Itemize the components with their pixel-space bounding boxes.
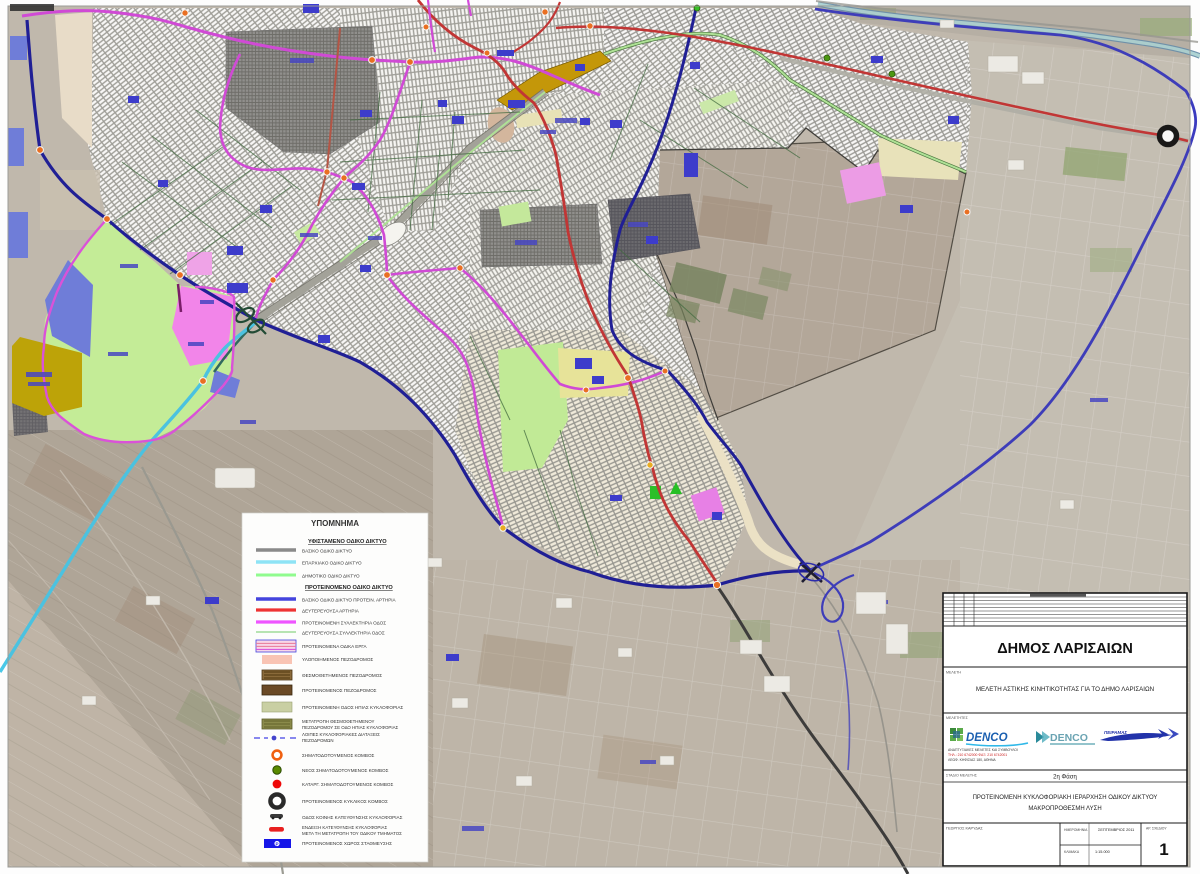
svg-text:ΕΠΑΡΧΙΑΚΟ ΟΔΙΚΟ ΔΙΚΤΥΟ: ΕΠΑΡΧΙΑΚΟ ΟΔΙΚΟ ΔΙΚΤΥΟ [302,561,362,566]
svg-text:ΓΕΩΡΓΙΟΣ ΚΑΡΥΔΑΣ: ΓΕΩΡΓΙΟΣ ΚΑΡΥΔΑΣ [946,827,983,831]
svg-text:ΠΡΟΤΕΙΝΟΜΕΝΟ ΟΔΙΚΟ ΔΙΚΤΥΟ: ΠΡΟΤΕΙΝΟΜΕΝΟ ΟΔΙΚΟ ΔΙΚΤΥΟ [305,585,393,591]
svg-text:ΔΕΥΤΕΡΕΥΟΥΣΑ ΣΥΛΛΕΚΤΗΡΙΑ ΟΔΟΣ: ΔΕΥΤΕΡΕΥΟΥΣΑ ΣΥΛΛΕΚΤΗΡΙΑ ΟΔΟΣ [302,631,385,636]
svg-text:ΘΕΣΜΟΘΕΤΗΜΕΝΟΣ ΠΕΖΟΔΡΟΜΟΣ: ΘΕΣΜΟΘΕΤΗΜΕΝΟΣ ΠΕΖΟΔΡΟΜΟΣ [302,673,382,678]
svg-text:ΣΕΠΤΕΜΒΡΙΟΣ 2011: ΣΕΠΤΕΜΒΡΙΟΣ 2011 [1098,828,1134,832]
svg-text:ΠΕΖΟΔΡΟΜΟΥ ΣΕ ΟΔΟ ΗΠΙΑΣ ΚΥΚΛΟΦ: ΠΕΖΟΔΡΟΜΟΥ ΣΕ ΟΔΟ ΗΠΙΑΣ ΚΥΚΛΟΦΟΡΙΑΣ [302,725,399,730]
svg-text:ΚΑΤΑΡΓ. ΣΗΜΑΤΟΔΟΤΟΥΜΕΝΟΣ ΚΟΜΒΟ: ΚΑΤΑΡΓ. ΣΗΜΑΤΟΔΟΤΟΥΜΕΝΟΣ ΚΟΜΒΟΣ [302,782,393,787]
svg-text:ΠΡΟΤΕΙΝΟΜΕΝΗ ΚΥΚΛΟΦΟΡΙΑΚΗ ΙΕΡΑ: ΠΡΟΤΕΙΝΟΜΕΝΗ ΚΥΚΛΟΦΟΡΙΑΚΗ ΙΕΡΑΡΧΗΣΗ ΟΔΙΚ… [973,795,1158,801]
svg-text:ΜΕΛΕΤΗ ΑΣΤΙΚΗΣ ΚΙΝΗΤΙΚΟΤΗΤΑΣ Γ: ΜΕΛΕΤΗ ΑΣΤΙΚΗΣ ΚΙΝΗΤΙΚΟΤΗΤΑΣ ΓΙΑ ΤΟ ΔΗΜΟ… [976,686,1154,693]
svg-text:ΗΜΕΡΟΜΗΝΙΑ: ΗΜΕΡΟΜΗΝΙΑ [1064,828,1088,832]
svg-text:ΥΛΟΠΟΙΗΜΕΝΟΣ ΠΕΖΟΔΡΟΜΟΣ: ΥΛΟΠΟΙΗΜΕΝΟΣ ΠΕΖΟΔΡΟΜΟΣ [302,657,373,662]
svg-text:ΕΝΔΕΙΞΗ ΚΑΤΕΥΘΥΝΣΗΣ ΚΥΚΛΟΦΟΡΙΑ: ΕΝΔΕΙΞΗ ΚΑΤΕΥΘΥΝΣΗΣ ΚΥΚΛΟΦΟΡΙΑΣ [302,825,387,830]
svg-text:ΜΑΚΡΟΠΡΟΘΕΣΜΗ ΛΥΣΗ: ΜΑΚΡΟΠΡΟΘΕΣΜΗ ΛΥΣΗ [1028,806,1101,812]
svg-text:2η Φάση: 2η Φάση [1053,774,1077,781]
svg-text:ΥΠΟΜΝΗΜΑ: ΥΠΟΜΝΗΜΑ [311,519,359,528]
svg-text:ΜΕΛΕΤΗΤΕΣ: ΜΕΛΕΤΗΤΕΣ [946,716,969,720]
svg-text:ΥΦΙΣΤΑΜΕΝΟ ΟΔΙΚΟ ΔΙΚΤΥΟ: ΥΦΙΣΤΑΜΕΝΟ ΟΔΙΚΟ ΔΙΚΤΥΟ [308,539,387,545]
svg-text:ΛΟΙΠΕΣ ΚΥΚΛΟΦΟΡΙΑΚΕΣ ΔΙΑΤΑΞΕΙΣ: ΛΟΙΠΕΣ ΚΥΚΛΟΦΟΡΙΑΚΕΣ ΔΙΑΤΑΞΕΙΣ [302,732,380,737]
svg-text:ΜΕΛΕΤΗ: ΜΕΛΕΤΗ [946,671,961,675]
svg-text:ΠΡΟΤΕΙΝΟΜΕΝΗ ΟΔΟΣ ΗΠΙΑΣ ΚΥΚΛΟΦ: ΠΡΟΤΕΙΝΟΜΕΝΗ ΟΔΟΣ ΗΠΙΑΣ ΚΥΚΛΟΦΟΡΙΑΣ [302,705,403,710]
svg-text:ΠΕΙΡΑΜΑΣ: ΠΕΙΡΑΜΑΣ [1104,730,1127,735]
svg-text:ΠΕΖΟΔΡΟΜΩΝ: ΠΕΖΟΔΡΟΜΩΝ [302,738,334,743]
svg-text:ΔΕΥΤΕΡΕΥΟΥΣΑ ΑΡΤΗΡΙΑ: ΔΕΥΤΕΡΕΥΟΥΣΑ ΑΡΤΗΡΙΑ [302,609,360,614]
svg-text:ΠΡΟΤΕΙΝΟΜΕΝΟΣ ΧΩΡΟΣ ΣΤΑΘΜΕΥΣΗΣ: ΠΡΟΤΕΙΝΟΜΕΝΟΣ ΧΩΡΟΣ ΣΤΑΘΜΕΥΣΗΣ [302,841,392,846]
svg-text:ΠΡΟΤΕΙΝΟΜΕΝΗ ΣΥΛΛΕΚΤΗΡΙΑ ΟΔΟΣ: ΠΡΟΤΕΙΝΟΜΕΝΗ ΣΥΛΛΕΚΤΗΡΙΑ ΟΔΟΣ [302,621,386,626]
svg-text:ΚΛΙΜΑΚΑ: ΚΛΙΜΑΚΑ [1064,850,1080,854]
svg-text:ΒΑΣΙΚΟ ΟΔΙΚΟ ΔΙΚΤΥΟ ΠΡΟΤΕΙΝ. Α: ΒΑΣΙΚΟ ΟΔΙΚΟ ΔΙΚΤΥΟ ΠΡΟΤΕΙΝ. ΑΡΤΗΡΙΑ [302,598,397,603]
svg-text:ΠΡΟΤΕΙΝΟΜΕΝΟΣ ΠΕΖΟΔΡΟΜΟΣ: ΠΡΟΤΕΙΝΟΜΕΝΟΣ ΠΕΖΟΔΡΟΜΟΣ [302,688,377,693]
svg-text:DENCO: DENCO [1050,732,1088,744]
svg-text:ΜΕΤΑ ΤΗ ΜΕΤΑΤΡΟΠΗ ΤΟΥ ΟΔΙΚΟΥ Τ: ΜΕΤΑ ΤΗ ΜΕΤΑΤΡΟΠΗ ΤΟΥ ΟΔΙΚΟΥ ΤΜΗΜΑΤΟΣ [302,831,402,836]
svg-text:ΣΤΑΔΙΟ ΜΕΛΕΤΗΣ: ΣΤΑΔΙΟ ΜΕΛΕΤΗΣ [946,774,978,778]
svg-text:DENCO: DENCO [966,732,1008,744]
svg-text:ΠΡΟΤΕΙΝΟΜΕΝΟΣ ΚΥΚΛΙΚΟΣ ΚΟΜΒΟΣ: ΠΡΟΤΕΙΝΟΜΕΝΟΣ ΚΥΚΛΙΚΟΣ ΚΟΜΒΟΣ [302,799,388,804]
svg-text:ΜΕΤΑΤΡΟΠΗ ΘΕΣΜΟΘΕΤΗΜΕΝΟΥ: ΜΕΤΑΤΡΟΠΗ ΘΕΣΜΟΘΕΤΗΜΕΝΟΥ [302,719,374,724]
svg-text:ΛΕΩΦ. ΚΗΦΙΣΙΑΣ 180, ΑΘΗΝΑ: ΛΕΩΦ. ΚΗΦΙΣΙΑΣ 180, ΑΘΗΝΑ [948,758,996,762]
svg-text:ΔΗΜΟΣ ΛΑΡΙΣΑΙΩΝ: ΔΗΜΟΣ ΛΑΡΙΣΑΙΩΝ [997,641,1133,657]
svg-text:ΝΕΟΣ ΣΗΜΑΤΟΔΟΤΟΥΜΕΝΟΣ ΚΟΜΒΟΣ: ΝΕΟΣ ΣΗΜΑΤΟΔΟΤΟΥΜΕΝΟΣ ΚΟΜΒΟΣ [302,768,389,773]
svg-text:1: 1 [1159,840,1168,859]
svg-text:1:15.000: 1:15.000 [1095,850,1110,854]
svg-text:ΤΗΛ.: 210 6742000 ΦΑΞ: 210 674: ΤΗΛ.: 210 6742000 ΦΑΞ: 210 6742001 [948,753,1007,757]
svg-text:ΑΡ. ΣΧΕΔΙΟΥ: ΑΡ. ΣΧΕΔΙΟΥ [1146,827,1167,831]
svg-text:ΠΡΟΤΕΙΝΟΜΕΝΑ ΟΔΙΚΑ ΕΡΓΑ: ΠΡΟΤΕΙΝΟΜΕΝΑ ΟΔΙΚΑ ΕΡΓΑ [302,644,367,649]
svg-text:P: P [275,842,278,847]
svg-text:ΟΔΟΣ ΚΟΙΝΗΣ ΚΑΤΕΥΘΥΝΣΗΣ ΚΥΚΛΟΦ: ΟΔΟΣ ΚΟΙΝΗΣ ΚΑΤΕΥΘΥΝΣΗΣ ΚΥΚΛΟΦΟΡΙΑΣ [302,815,403,820]
svg-text:ΑΝΑΠΤΥΞΙΑΚΕΣ ΜΕΛΕΤΕΣ ΚΑΙ ΣΥΜΒΟ: ΑΝΑΠΤΥΞΙΑΚΕΣ ΜΕΛΕΤΕΣ ΚΑΙ ΣΥΜΒΟΥΛΟΙ [948,748,1018,752]
svg-text:ΒΑΣΙΚΟ ΟΔΙΚΟ ΔΙΚΤΥΟ: ΒΑΣΙΚΟ ΟΔΙΚΟ ΔΙΚΤΥΟ [302,549,352,554]
svg-text:ΣΗΜΑΤΟΔΟΤΟΥΜΕΝΟΣ ΚΟΜΒΟΣ: ΣΗΜΑΤΟΔΟΤΟΥΜΕΝΟΣ ΚΟΜΒΟΣ [302,753,375,758]
svg-text:ΔΗΜΟΤΙΚΟ ΟΔΙΚΟ ΔΙΚΤΥΟ: ΔΗΜΟΤΙΚΟ ΟΔΙΚΟ ΔΙΚΤΥΟ [302,574,360,579]
